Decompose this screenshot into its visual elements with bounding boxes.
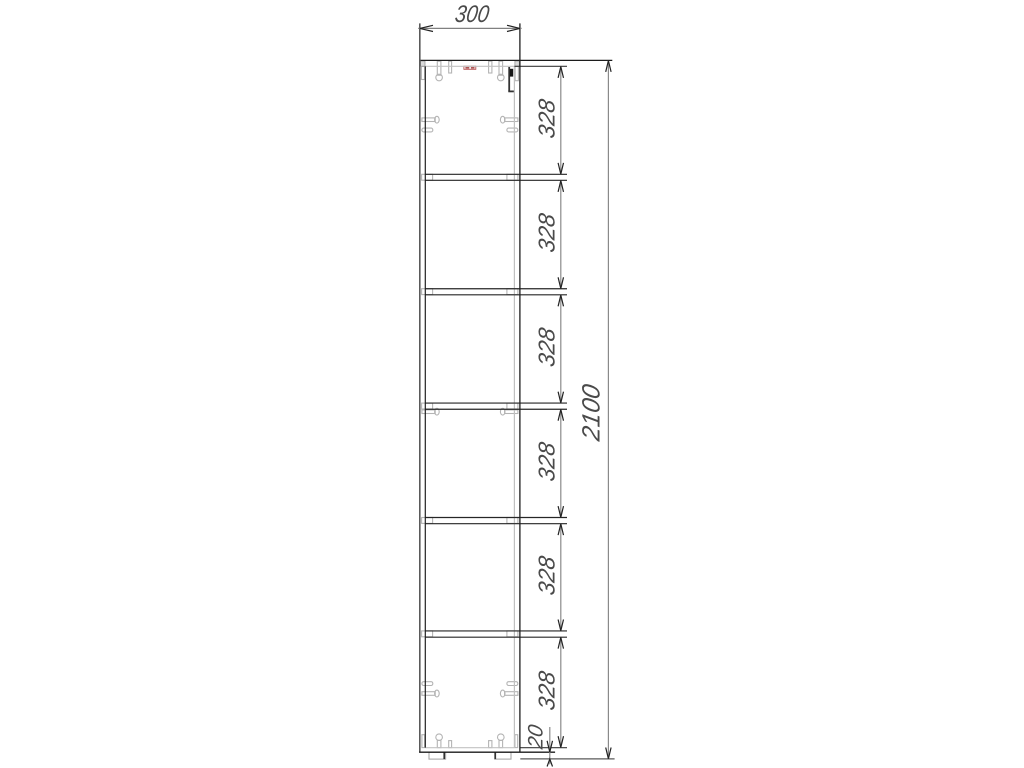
svg-text:20: 20: [525, 723, 548, 752]
svg-text:2100: 2100: [578, 382, 606, 444]
svg-text:300: 300: [453, 1, 491, 28]
svg-text:328: 328: [533, 440, 559, 483]
svg-text:328: 328: [533, 326, 559, 369]
svg-text:328: 328: [533, 554, 559, 597]
svg-text:328: 328: [533, 211, 559, 254]
svg-text:328: 328: [533, 97, 559, 140]
svg-text:328: 328: [533, 669, 559, 712]
